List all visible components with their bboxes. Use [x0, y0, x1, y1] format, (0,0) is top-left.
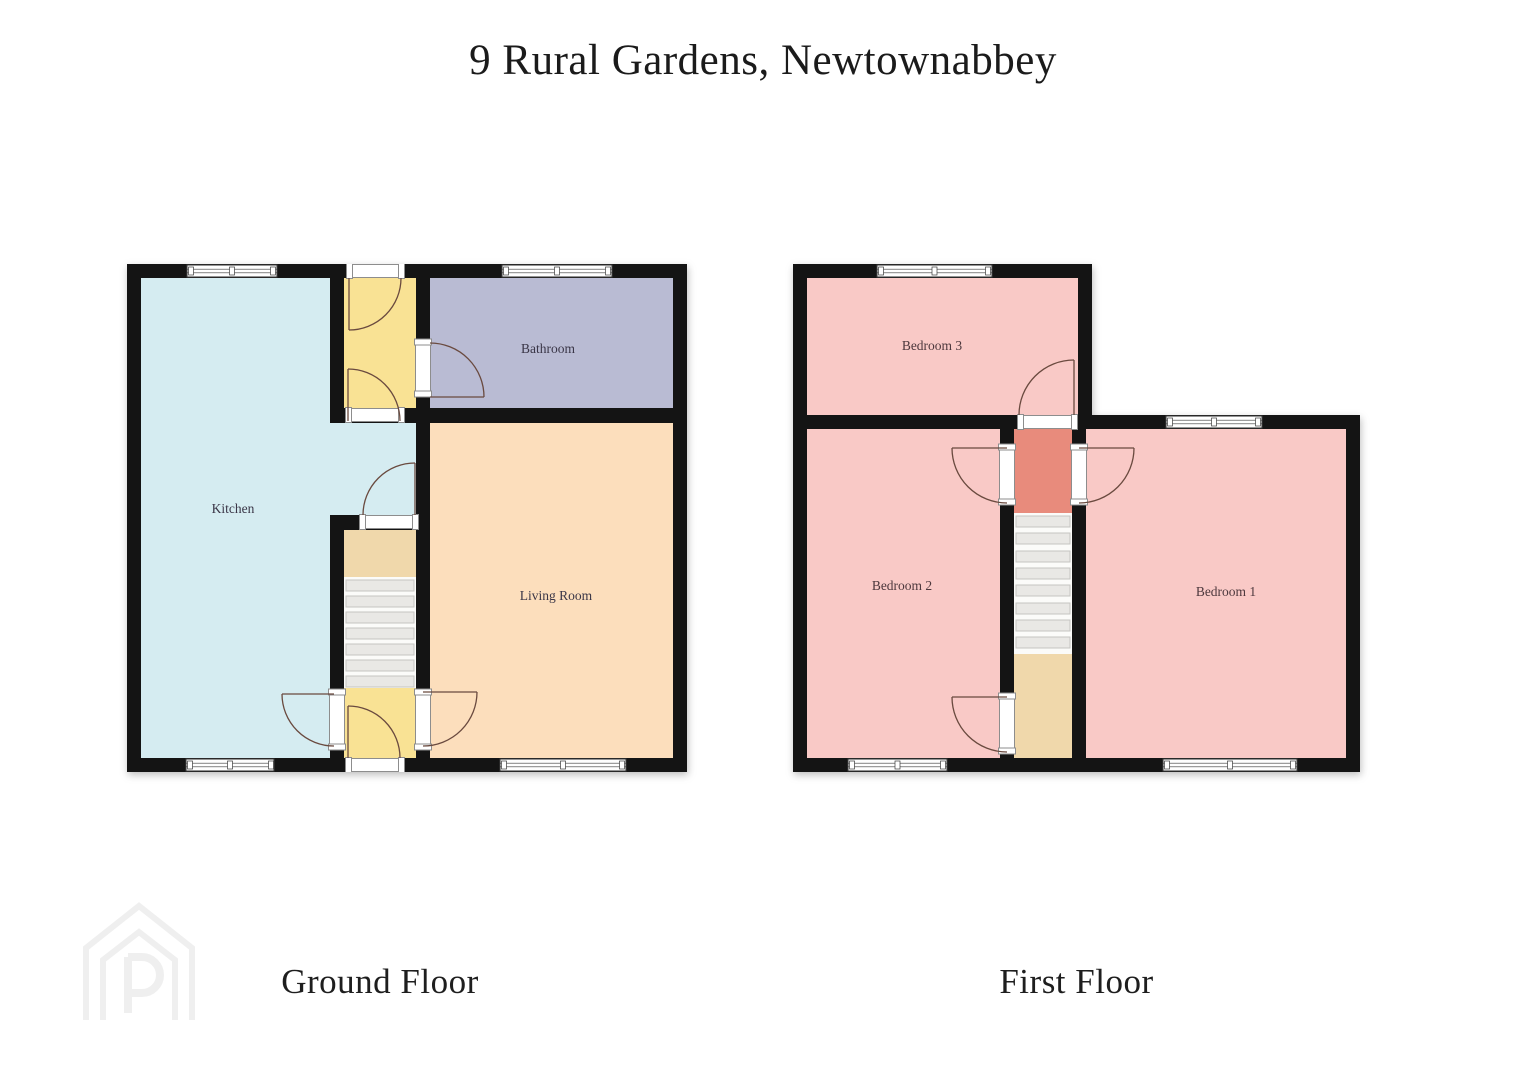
- bedroom3-top-window-icon: [877, 265, 992, 277]
- living-room-bottom-window-icon: [500, 759, 626, 771]
- bedroom2-room: [807, 429, 1000, 758]
- room-label-bathroom: Bathroom: [521, 341, 575, 356]
- room-label-living-room: Living Room: [520, 588, 593, 603]
- ground-floor-label: Ground Floor: [100, 962, 660, 1002]
- bedroom1-top-window-icon: [1166, 416, 1262, 428]
- kitchen-top-window-icon: [187, 265, 277, 277]
- room-label-kitchen: Kitchen: [212, 501, 255, 516]
- hall-inner-door-frame: [346, 408, 405, 423]
- entrance-hall-room: [344, 278, 416, 408]
- bathroom-top-window-icon: [502, 265, 612, 277]
- room-label-bedroom3: Bedroom 3: [902, 338, 963, 353]
- entrance-door-frame: [347, 264, 405, 279]
- bedroom3-door-frame: [1018, 415, 1078, 430]
- stair-landing-tan: [1014, 654, 1072, 758]
- bedroom2-lower-door-frame: [999, 693, 1016, 754]
- stair-landing-red: [1014, 429, 1072, 513]
- ground-floor-plan: Kitchen Bathroom Living Room: [127, 264, 687, 772]
- bedroom2-door-frame: [999, 444, 1016, 505]
- page-title: 9 Rural Gardens, Newtownabbey: [0, 36, 1526, 85]
- room-label-bedroom1: Bedroom 1: [1196, 584, 1256, 599]
- stair-landing-tan: [344, 530, 416, 577]
- stairs-door-frame: [360, 515, 419, 530]
- lower-hall-room: [344, 688, 416, 758]
- first-floor-plan: Bedroom 3 Bedroom 2 Bedroom 1: [793, 264, 1360, 772]
- bathroom-door-frame: [415, 339, 432, 397]
- bedroom1-door-frame: [1071, 444, 1088, 505]
- living-room-door-frame: [415, 689, 432, 750]
- front-door-frame: [346, 758, 405, 773]
- bedroom2-bottom-window-icon: [848, 759, 947, 771]
- watermark-house-logo-icon: [73, 893, 205, 1023]
- room-label-bedroom2: Bedroom 2: [872, 578, 932, 593]
- staircase: [1014, 429, 1072, 758]
- kitchen-door-frame: [329, 689, 346, 750]
- bedroom1-bottom-window-icon: [1163, 759, 1297, 771]
- kitchen-bottom-window-icon: [186, 759, 274, 771]
- staircase: [344, 530, 416, 688]
- first-floor-label: First Floor: [793, 962, 1360, 1002]
